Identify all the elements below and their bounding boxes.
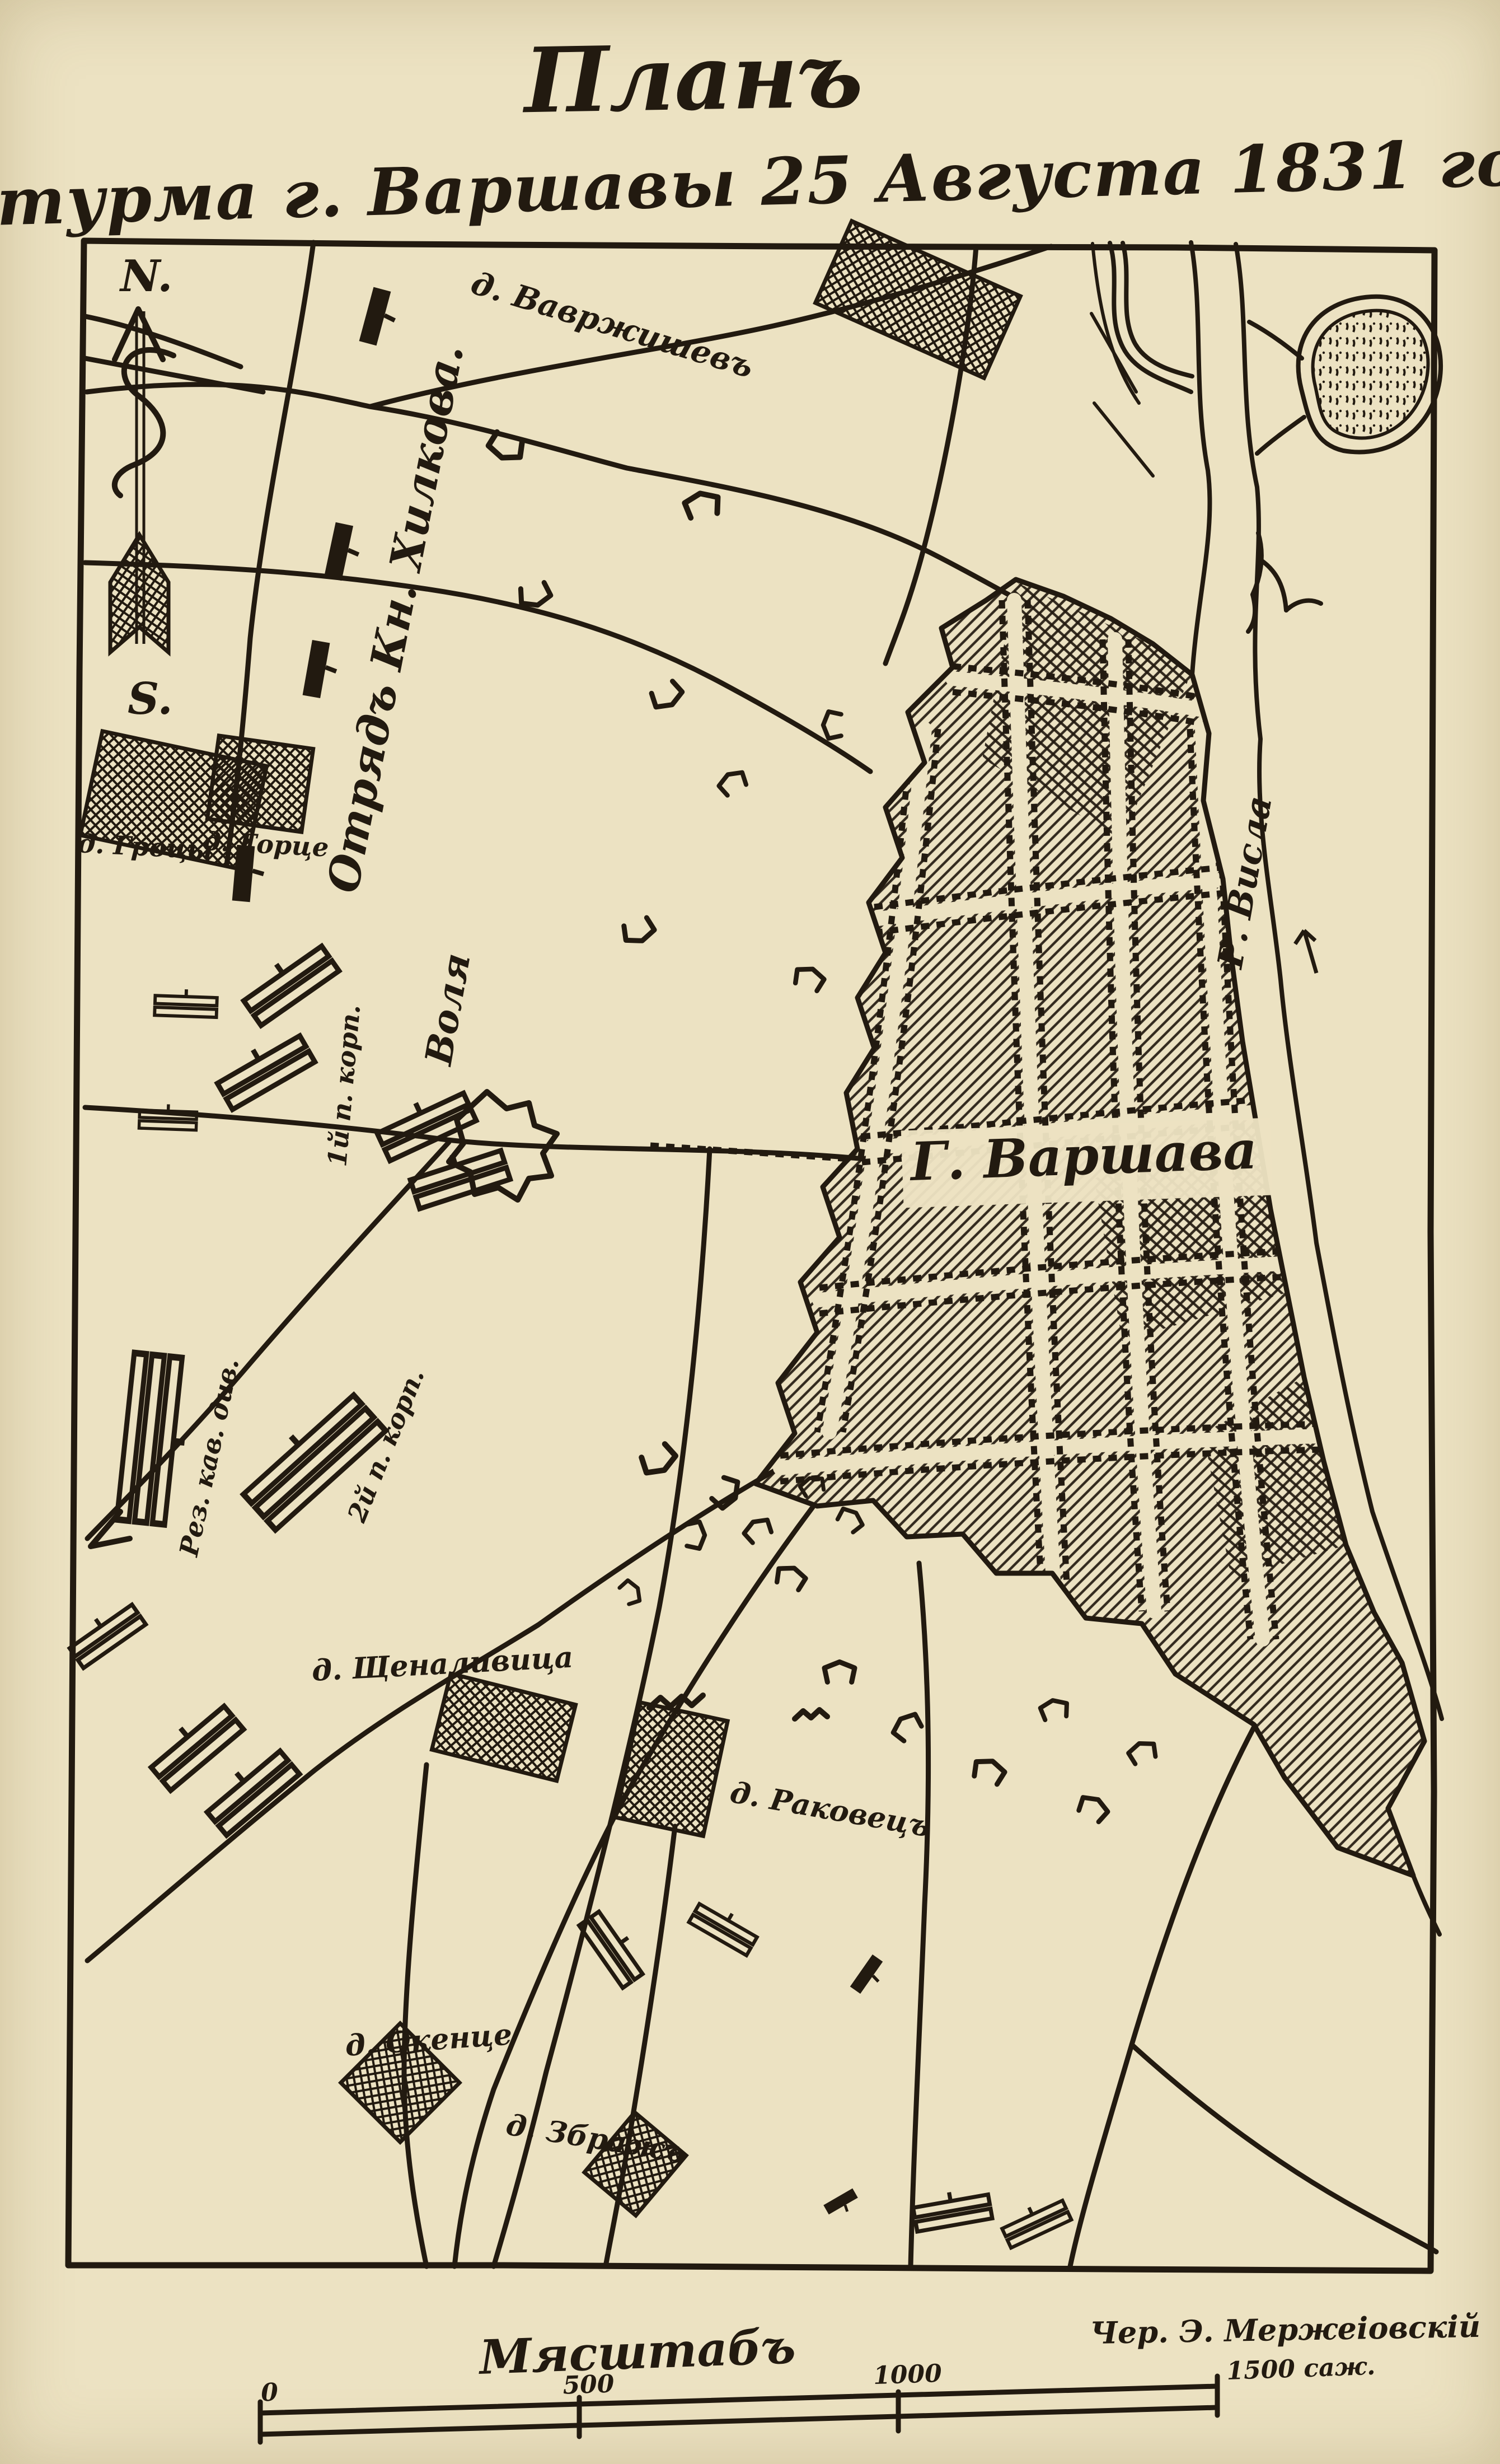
redoubt-icon — [683, 490, 720, 518]
village-label-okentse: д. Окенце — [344, 2017, 513, 2063]
redoubt-icon — [836, 1505, 866, 1534]
troop-column-icon — [154, 988, 217, 1017]
city-label: Г. Варшава — [908, 1119, 1258, 1193]
north-arrow-icon — [110, 309, 174, 652]
redoubt-icon — [618, 1578, 644, 1606]
redoubt-icon — [518, 582, 552, 609]
redoubt-icon — [649, 680, 685, 712]
scale-bar — [260, 2376, 1217, 2442]
compass: N. S. — [110, 251, 174, 724]
road — [1070, 1726, 1255, 2266]
page-subtitle: штурма г. Варшавы 25 Августа 1831 года. — [0, 121, 1500, 242]
island-marsh — [1313, 311, 1428, 438]
scale-tick-label: 1500 саж. — [1226, 2352, 1376, 2386]
river-bank — [1191, 242, 1210, 675]
redoubt-icon — [639, 1442, 679, 1479]
scale-title: Мясштабъ — [477, 2318, 796, 2385]
village-label-rakovets: д. Раковецъ — [728, 1775, 933, 1844]
redoubt-icon — [621, 917, 657, 946]
redoubt-icon — [972, 1756, 1007, 1785]
redoubt-icon — [1076, 1793, 1110, 1824]
scale-tick-label: 1000 — [873, 2359, 943, 2390]
village-block — [432, 1673, 575, 1780]
redoubt-icon — [823, 712, 841, 738]
field-line — [1094, 403, 1153, 476]
troop-bar-icon — [324, 522, 364, 583]
redoubt-icon — [1127, 1739, 1158, 1765]
village-label-shchenalivitsa: д. Щеналивица — [311, 1640, 574, 1688]
page-title: Планъ — [521, 22, 864, 134]
troop-column-icon — [212, 1026, 315, 1110]
troop-column-icon — [144, 1698, 243, 1790]
zigzag-work-icon — [795, 1710, 827, 1719]
redoubt-icon — [889, 1710, 924, 1743]
redoubt-icon — [687, 1522, 705, 1549]
village-label-bavrzhishav: д. Вавржишевъ — [467, 264, 758, 385]
troop-column-icon — [579, 1906, 650, 1988]
road — [85, 563, 870, 772]
troop-column-icon — [64, 1597, 146, 1668]
troop-column-icon — [999, 2194, 1071, 2248]
stream — [1123, 243, 1192, 376]
city-warsaw: Г. Варшава — [756, 579, 1424, 1876]
troop-bar-icon — [359, 287, 402, 349]
title-block: Планъ штурма г. Варшавы 25 Августа 1831 … — [0, 22, 1500, 242]
troop-column-icon — [139, 1104, 196, 1130]
unit-label-khilkov: Отрядъ Кн. Хилкова. — [317, 340, 474, 896]
troop-column-icon — [237, 937, 339, 1026]
channel — [1257, 417, 1304, 453]
troop-bar-icon — [850, 1955, 889, 1998]
channel — [1249, 322, 1302, 358]
scale-tick-label: 0 — [260, 2378, 279, 2407]
flow-arrow-icon — [1295, 931, 1316, 973]
unit-label-rez-kav: Рез. кав. див. — [174, 1355, 245, 1560]
village-label-volya: Воля — [416, 950, 479, 1069]
troop-column-icon — [689, 1897, 761, 1955]
road — [1132, 2045, 1436, 2252]
scale-tick-label: 500 — [562, 2369, 615, 2400]
troop-bar-icon — [823, 2189, 861, 2220]
map-sheet: Планъ штурма г. Варшавы 25 Августа 1831 … — [0, 0, 1500, 2464]
redoubt-icon — [742, 1515, 774, 1544]
redoubt-icon — [1039, 1698, 1069, 1720]
road — [404, 1765, 426, 2266]
redoubt-icon — [774, 1563, 808, 1591]
redoubt-icon — [716, 768, 749, 797]
road — [87, 385, 1009, 595]
map-canvas: Планъ штурма г. Варшавы 25 Августа 1831 … — [0, 0, 1500, 2464]
compass-south-label: S. — [128, 674, 173, 724]
village-block — [207, 736, 313, 832]
marsh-branches — [1248, 533, 1321, 632]
redoubt-icon — [793, 964, 826, 992]
troop-column-icon — [912, 2186, 992, 2232]
road — [911, 1563, 929, 2266]
redoubt-icon — [824, 1662, 855, 1682]
village-label-grotsy: д. Гроцы — [77, 828, 214, 866]
troop-bar-icon — [303, 640, 341, 700]
credit-label: Чер. Э. Мержеіовскій — [1090, 2308, 1481, 2351]
unit-label-corps1: 1й п. корп. — [322, 1003, 366, 1168]
compass-north-label: N. — [119, 251, 172, 302]
